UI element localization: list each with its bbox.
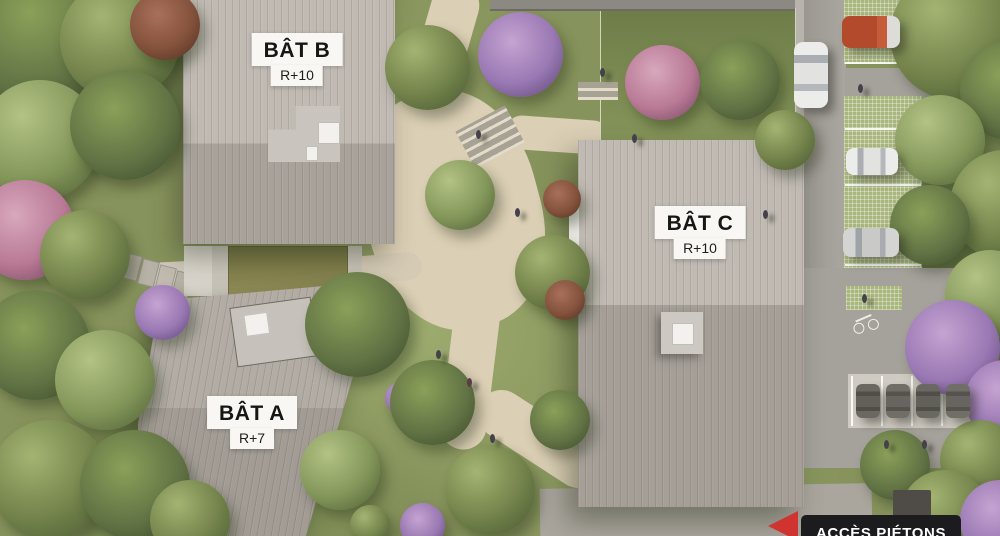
skylight <box>318 122 340 144</box>
car-icon <box>846 148 898 175</box>
car-icon <box>856 384 880 418</box>
tree <box>425 160 495 230</box>
stall-line <box>851 376 853 426</box>
tree <box>300 430 380 510</box>
building-c-floors: R+10 <box>674 238 726 259</box>
pedestrian-icon <box>467 378 472 387</box>
tree <box>70 70 180 180</box>
building-b-name: BÂT B <box>252 33 343 66</box>
stall-line <box>881 376 883 426</box>
canopy-roof-edge <box>490 0 795 11</box>
skylight <box>306 146 318 161</box>
pedestrian-icon <box>922 440 927 449</box>
building-c-roof-terrace <box>661 312 703 354</box>
building-a-floors: R+7 <box>230 428 274 449</box>
flowering-shrub <box>543 180 581 218</box>
skylight <box>243 312 270 337</box>
tree <box>890 185 970 265</box>
tree <box>385 25 470 110</box>
tree <box>755 110 815 170</box>
outdoor-steps <box>578 82 618 100</box>
skylight <box>672 323 694 345</box>
pedestrian-icon <box>763 210 768 219</box>
flowering-shrub <box>545 280 585 320</box>
pedestrian-icon <box>884 440 889 449</box>
flowering-tree <box>625 45 700 120</box>
tree <box>530 390 590 450</box>
building-bat-c <box>578 140 804 507</box>
building-b-roof-structure <box>268 106 340 162</box>
building-c-name: BÂT C <box>655 206 746 239</box>
building-a-name: BÂT A <box>207 396 297 429</box>
paver-square <box>846 286 902 310</box>
pedestrian-icon <box>858 84 863 93</box>
car-icon <box>916 384 940 418</box>
pedestrian-icon <box>490 434 495 443</box>
pedestrian-icon <box>436 350 441 359</box>
pedestrian-access-label: ACCÈS PIÉTONS <box>801 515 961 536</box>
pedestrian-icon <box>476 130 481 139</box>
stall-line <box>845 264 921 266</box>
building-b-floors: R+10 <box>271 65 323 86</box>
pedestrian-icon <box>862 294 867 303</box>
tree <box>305 272 410 377</box>
tree <box>40 210 130 300</box>
building-b-label-plaque: BÂT B R+10 <box>252 33 343 86</box>
tree <box>350 505 390 536</box>
car-icon <box>886 384 910 418</box>
stall-line <box>911 376 913 426</box>
car-icon <box>842 16 900 48</box>
car-icon <box>946 384 970 418</box>
site-plan-render: BÂT B R+10 BÂT C R+10 BÂT A R+7 ACCÈS PI… <box>0 0 1000 536</box>
pedestrian-icon <box>600 68 605 77</box>
tree <box>390 360 475 445</box>
flowering-shrub <box>400 503 445 536</box>
pedestrian-icon <box>632 134 637 143</box>
building-c-label-plaque: BÂT C R+10 <box>655 206 746 259</box>
tree <box>700 40 780 120</box>
arrow-left-icon <box>768 511 798 536</box>
flowering-shrub <box>135 285 190 340</box>
car-icon <box>794 42 828 108</box>
car-icon <box>843 228 899 257</box>
tree <box>445 445 535 535</box>
flowering-tree <box>478 12 563 97</box>
tree <box>55 330 155 430</box>
building-a-label-plaque: BÂT A R+7 <box>207 396 297 449</box>
pedestrian-icon <box>515 208 520 217</box>
stall-line <box>845 184 921 186</box>
